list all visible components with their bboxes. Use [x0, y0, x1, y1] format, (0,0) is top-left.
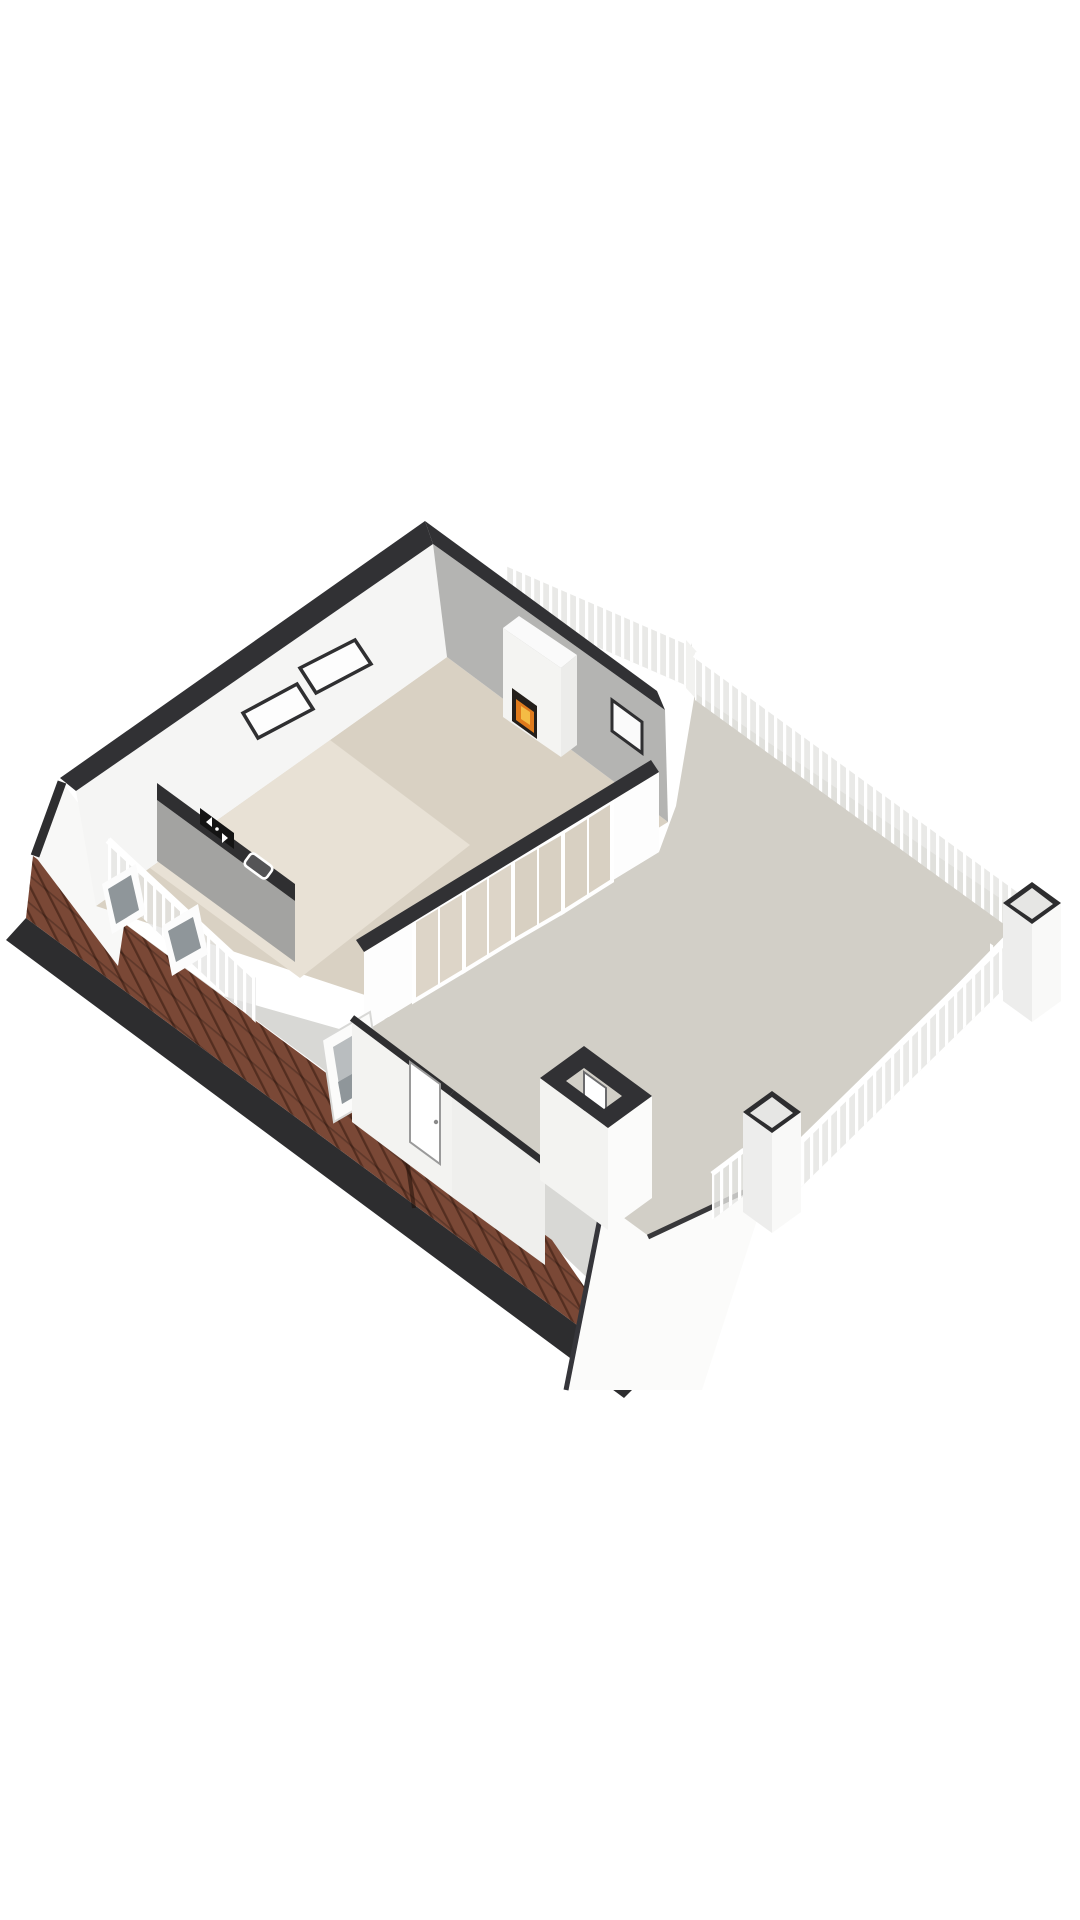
chimney-right	[1003, 882, 1061, 1022]
chimney-face-left	[743, 1112, 772, 1233]
door-handle	[434, 1120, 438, 1124]
chimney-face-right	[772, 1112, 801, 1233]
floorplan-canvas	[0, 0, 1080, 1920]
cooktop-burner-dot	[215, 827, 219, 831]
chimney-bottom	[743, 1091, 801, 1233]
floorplan-3d-render	[0, 0, 1080, 1920]
fireplace-side	[561, 655, 577, 757]
